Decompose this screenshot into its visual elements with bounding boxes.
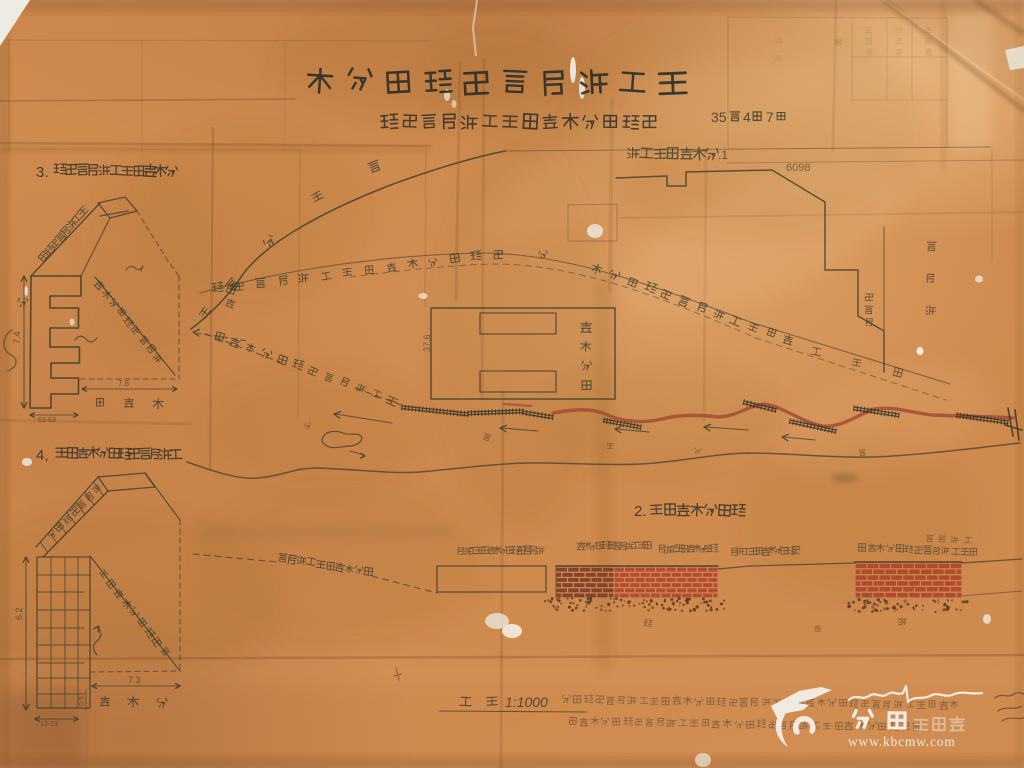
svg-text:www.kbcmw.com: www.kbcmw.com bbox=[848, 734, 956, 749]
svg-text:.1: .1 bbox=[718, 148, 728, 162]
svg-text:6098: 6098 bbox=[786, 162, 810, 174]
svg-text:1:1000: 1:1000 bbox=[505, 694, 548, 710]
svg-text:63-63: 63-63 bbox=[38, 417, 56, 424]
svg-text:7.8: 7.8 bbox=[118, 379, 130, 388]
svg-text:4: 4 bbox=[743, 109, 751, 125]
svg-text:6.2: 6.2 bbox=[14, 607, 24, 620]
svg-text:13-13: 13-13 bbox=[40, 721, 58, 728]
svg-text:35: 35 bbox=[711, 109, 727, 125]
svg-text:0.5: 0.5 bbox=[79, 696, 86, 706]
svg-text:7.4: 7.4 bbox=[12, 331, 22, 344]
svg-text:7: 7 bbox=[766, 109, 774, 125]
svg-text:3.: 3. bbox=[36, 164, 49, 181]
svg-text:7.3: 7.3 bbox=[128, 675, 141, 685]
svg-text:2.: 2. bbox=[634, 503, 647, 520]
svg-text:4,: 4, bbox=[36, 447, 49, 464]
svg-text:37.6: 37.6 bbox=[422, 334, 432, 352]
